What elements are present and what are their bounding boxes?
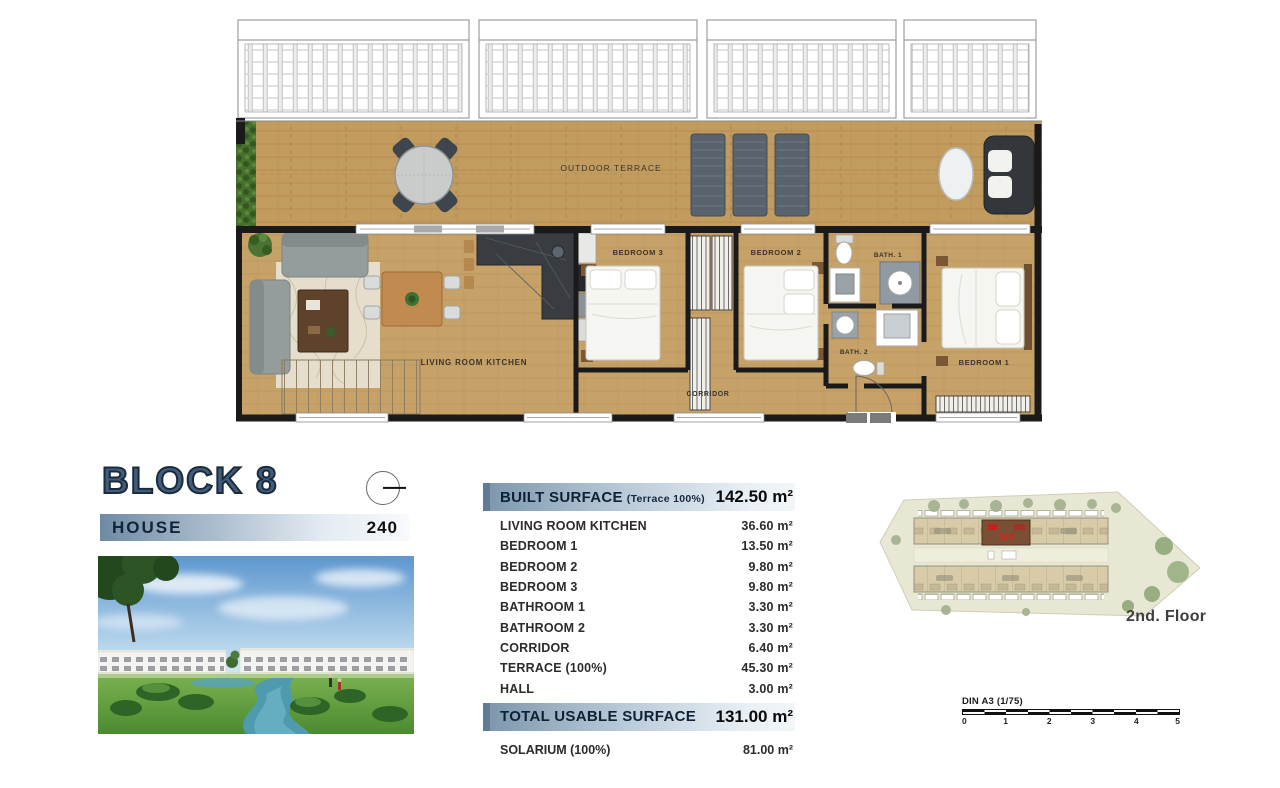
scale-bar: DIN A3 (1/75) 0 1 2 3 4 5 bbox=[962, 696, 1180, 727]
terrace-side-table bbox=[939, 148, 973, 200]
coffee-table bbox=[298, 290, 348, 352]
outdoor-terrace-area: OUTDOOR TERRACE bbox=[236, 118, 1042, 226]
table-row: BEDROOM 39.80 m² bbox=[500, 577, 793, 597]
table-row: HALL3.00 m² bbox=[500, 678, 793, 698]
built-surface-value: 142.50 m² bbox=[716, 487, 794, 507]
house-number: 240 bbox=[367, 518, 398, 538]
solarium-row: SOLARIUM (100%)81.00 m² bbox=[483, 740, 795, 761]
table-row: BEDROOM 29.80 m² bbox=[500, 557, 793, 577]
outdoor-sofa bbox=[984, 136, 1034, 214]
highlighted-unit: 240 bbox=[982, 520, 1030, 545]
bedroom3-label: BEDROOM 3 bbox=[613, 248, 664, 257]
table-row: CORRIDOR6.40 m² bbox=[500, 638, 793, 658]
pergola-roof bbox=[238, 20, 1036, 118]
bedroom1-label: BEDROOM 1 bbox=[959, 358, 1010, 367]
table-row: LIVING ROOM KITCHEN36.60 m² bbox=[500, 516, 793, 536]
built-surface-header: BUILT SURFACE(Terrace 100%) 142.50 m² bbox=[483, 483, 795, 511]
surface-table: BUILT SURFACE(Terrace 100%) 142.50 m² LI… bbox=[483, 483, 795, 761]
compass-icon bbox=[366, 471, 400, 505]
floor-plan: OUTDOOR TERRACE bbox=[236, 14, 1046, 432]
corridor-label: CORRIDOR bbox=[687, 391, 730, 398]
terrace-table bbox=[391, 136, 460, 215]
table-row: BATHROOM 23.30 m² bbox=[500, 617, 793, 637]
table-row: BEDROOM 113.50 m² bbox=[500, 536, 793, 556]
staircase bbox=[282, 360, 420, 414]
block-title: BLOCK 8 bbox=[102, 460, 278, 502]
total-usable-header: TOTAL USABLE SURFACE 131.00 m² bbox=[483, 703, 795, 731]
house-label: HOUSE bbox=[112, 518, 182, 538]
total-usable-label: TOTAL USABLE SURFACE bbox=[500, 708, 696, 725]
scale-bar-strip bbox=[962, 709, 1180, 715]
table-row: TERRACE (100%)45.30 m² bbox=[500, 658, 793, 678]
development-photo bbox=[98, 556, 414, 734]
house-bar: HOUSE 240 bbox=[100, 514, 410, 541]
total-usable-value: 131.00 m² bbox=[716, 707, 794, 727]
built-surface-label: BUILT SURFACE(Terrace 100%) bbox=[500, 489, 705, 506]
bedroom3-bed bbox=[581, 264, 660, 362]
bedroom2-label: BEDROOM 2 bbox=[751, 248, 802, 257]
outdoor-terrace-label: OUTDOOR TERRACE bbox=[560, 163, 661, 173]
floorplan-sheet: { "title": { "block": "BLOCK 8", "house_… bbox=[0, 0, 1280, 788]
bath1-label: BATH. 1 bbox=[874, 252, 902, 259]
highlighted-unit-number: 240 bbox=[998, 532, 1013, 542]
surface-rows: LIVING ROOM KITCHEN36.60 m² BEDROOM 113.… bbox=[483, 511, 795, 703]
living-room-label: LIVING ROOM KITCHEN bbox=[421, 358, 528, 367]
sun-loungers bbox=[691, 134, 809, 216]
scale-label: DIN A3 (1/75) bbox=[962, 696, 1180, 707]
bedroom2-bed bbox=[744, 262, 824, 360]
bath2-label: BATH. 2 bbox=[840, 349, 868, 356]
scale-ticks: 0 1 2 3 4 5 bbox=[962, 716, 1180, 727]
table-row: BATHROOM 13.30 m² bbox=[500, 597, 793, 617]
floor-label: 2nd. Floor bbox=[1126, 608, 1206, 626]
